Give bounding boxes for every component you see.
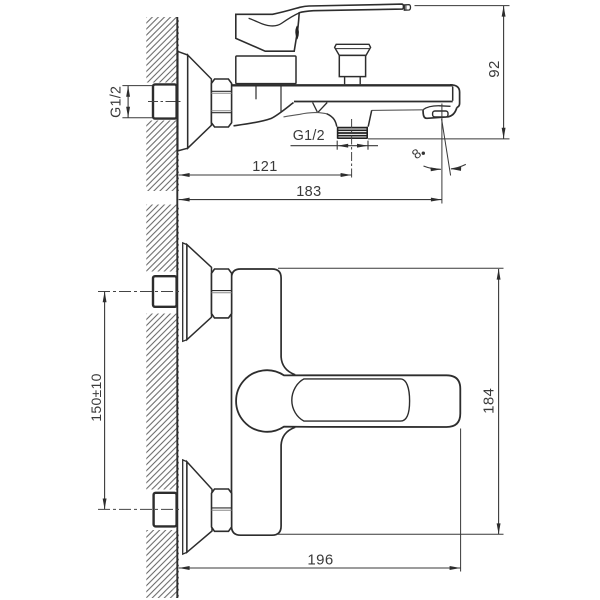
svg-text:G1/2: G1/2 xyxy=(108,86,124,118)
svg-text:183: 183 xyxy=(296,184,321,200)
svg-text:150±10: 150±10 xyxy=(88,373,104,421)
svg-text:121: 121 xyxy=(252,159,277,175)
svg-text:92: 92 xyxy=(486,60,503,78)
svg-text:184: 184 xyxy=(480,388,497,414)
svg-text:G1/2: G1/2 xyxy=(293,128,325,144)
svg-text:196: 196 xyxy=(307,551,333,568)
